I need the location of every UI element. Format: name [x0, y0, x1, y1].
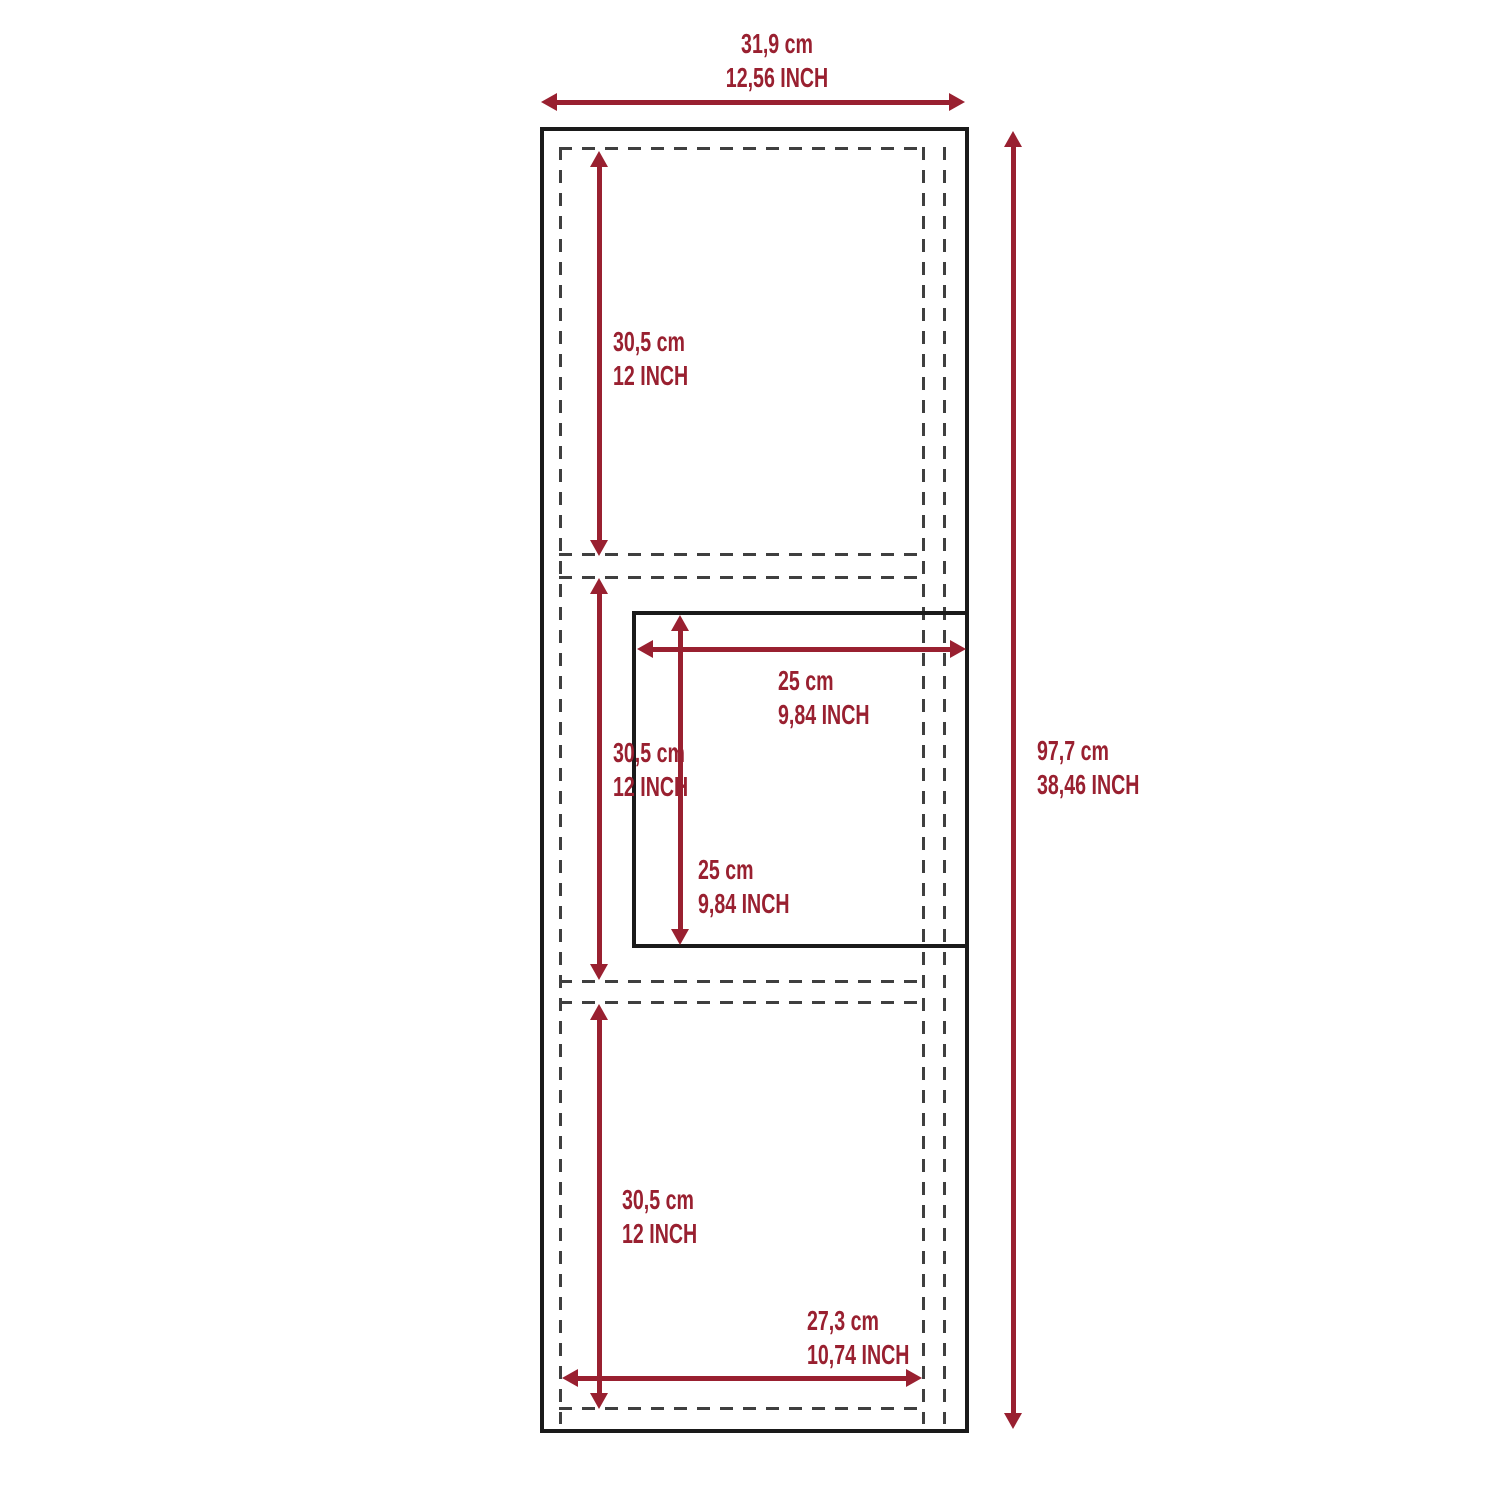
dim-label-opening-height: 25 cm 9,84 INCH	[698, 853, 790, 921]
dim-value-inch: 10,74 INCH	[807, 1338, 909, 1372]
dim-label-bottom-section-height: 30,5 cm 12 INCH	[622, 1183, 697, 1251]
arrow-shaft	[650, 647, 953, 652]
shelf-divider-1-bottom-line	[559, 576, 926, 579]
dim-value-inch: 12,56 INCH	[693, 61, 861, 95]
inner-dashed-top-line	[559, 147, 926, 150]
arrowhead-down-icon	[590, 1393, 608, 1409]
dim-arrow-bottom-section-height	[590, 1004, 608, 1409]
dim-label-overall-width: 31,9 cm 12,56 INCH	[693, 27, 861, 95]
arrow-shaft	[554, 100, 952, 105]
dim-label-top-section-height: 30,5 cm 12 INCH	[613, 325, 688, 393]
dim-arrow-overall-width	[541, 93, 965, 111]
arrow-shaft	[575, 1376, 909, 1381]
dim-label-middle-section-height: 30,5 cm 12 INCH	[613, 736, 688, 804]
inner-dashed-bottom-line	[559, 1407, 926, 1410]
arrowhead-down-icon	[590, 964, 608, 980]
dim-value-cm: 25 cm	[778, 664, 870, 698]
shelf-divider-2-bottom-line	[559, 1001, 926, 1004]
dim-value-cm: 97,7 cm	[1037, 734, 1139, 768]
dim-label-overall-height: 97,7 cm 38,46 INCH	[1037, 734, 1139, 802]
arrow-shaft	[597, 591, 602, 967]
dim-value-inch: 9,84 INCH	[778, 698, 870, 732]
shelf-divider-1-top-line	[559, 553, 926, 556]
dim-label-interior-width: 27,3 cm 10,74 INCH	[807, 1304, 909, 1372]
dim-value-cm: 30,5 cm	[622, 1183, 697, 1217]
dim-value-inch: 12 INCH	[622, 1217, 697, 1251]
dim-label-opening-width: 25 cm 9,84 INCH	[778, 664, 870, 732]
arrowhead-down-icon	[590, 540, 608, 556]
dim-value-inch: 9,84 INCH	[698, 887, 790, 921]
dimension-diagram: 31,9 cm 12,56 INCH 97,7 cm 38,46 INCH 30…	[0, 0, 1500, 1500]
arrowhead-right-icon	[949, 93, 965, 111]
dim-arrow-top-section-height	[590, 151, 608, 556]
shelf-divider-2-top-line	[559, 980, 926, 983]
arrowhead-down-icon	[1004, 1413, 1022, 1429]
arrow-shaft	[1011, 144, 1016, 1416]
dim-value-cm: 30,5 cm	[613, 736, 688, 770]
inner-dashed-left-line	[559, 147, 562, 1424]
dim-value-cm: 27,3 cm	[807, 1304, 909, 1338]
dim-value-cm: 30,5 cm	[613, 325, 688, 359]
arrow-shaft	[597, 1017, 602, 1396]
dim-arrow-overall-height	[1004, 131, 1022, 1429]
arrow-shaft	[597, 164, 602, 543]
dim-value-inch: 38,46 INCH	[1037, 768, 1139, 802]
dim-value-inch: 12 INCH	[613, 770, 688, 804]
dim-value-cm: 31,9 cm	[693, 27, 861, 61]
dim-value-cm: 25 cm	[698, 853, 790, 887]
arrowhead-right-icon	[950, 640, 966, 658]
dim-arrow-middle-section-height	[590, 578, 608, 980]
dim-value-inch: 12 INCH	[613, 359, 688, 393]
arrowhead-down-icon	[671, 929, 689, 945]
